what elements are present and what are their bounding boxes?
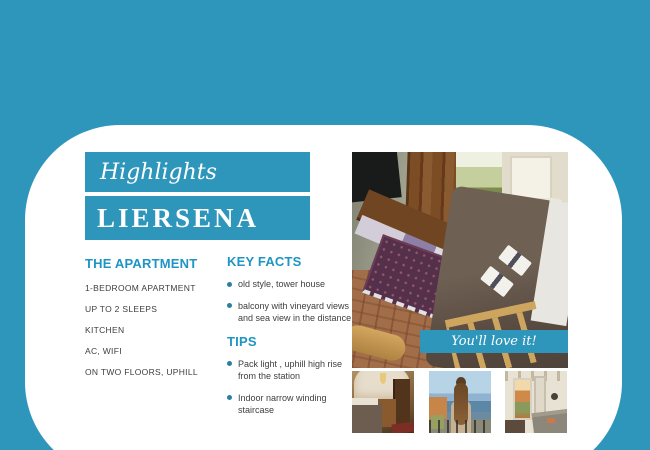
key-facts-heading: KEY FACTS	[227, 254, 353, 269]
flyer-card: Highlights LIERSENA THE APARTMENT 1-BEDR…	[25, 125, 622, 450]
tip-item: Indoor narrow winding staircase	[227, 392, 353, 417]
bullet-dot-icon	[227, 361, 232, 366]
photo-lamp	[380, 373, 386, 384]
photo-rug	[391, 422, 414, 433]
highlights-label: Highlights	[100, 160, 217, 185]
photo-bed-item	[547, 418, 555, 423]
tip-text: Indoor narrow winding staircase	[238, 392, 353, 417]
apartment-item: ON TWO FLOORS, UPHILL	[85, 368, 205, 377]
flyer-background: Highlights LIERSENA THE APARTMENT 1-BEDR…	[0, 0, 650, 450]
property-name: LIERSENA	[97, 203, 259, 234]
key-facts-section: KEY FACTS old style, tower house balcony…	[227, 254, 353, 426]
caption-banner: You'll love it!	[420, 330, 568, 353]
tip-text: Pack light , uphill high rise from the s…	[238, 358, 353, 383]
apartment-item: 1-BEDROOM APARTMENT	[85, 284, 205, 293]
caption-text: You'll love it!	[451, 334, 536, 349]
apartment-item: UP TO 2 SLEEPS	[85, 305, 205, 314]
apartment-item: AC, WIFI	[85, 347, 205, 356]
photo-pillow	[352, 398, 378, 405]
bullet-dot-icon	[227, 282, 232, 287]
key-fact-text: balcony with vineyard views and sea view…	[238, 300, 353, 325]
photo-balcony-railing	[429, 420, 491, 433]
key-fact-item: balcony with vineyard views and sea view…	[227, 300, 353, 325]
thumbnail-bedroom	[352, 371, 414, 433]
apartment-section: THE APARTMENT 1-BEDROOM APARTMENT UP TO …	[85, 256, 205, 389]
photo-doorway-view	[513, 378, 532, 420]
apartment-item: KITCHEN	[85, 326, 205, 335]
photo-long-hair	[454, 383, 468, 425]
key-fact-item: old style, tower house	[227, 278, 353, 291]
thumbnail-balcony-sea-view	[429, 371, 491, 433]
photo-wall-ornament	[551, 393, 558, 400]
bullet-dot-icon	[227, 303, 232, 308]
thumbnail-bright-room	[505, 371, 567, 433]
key-fact-text: old style, tower house	[238, 278, 325, 291]
title-banner: LIERSENA	[85, 196, 310, 240]
photo-floor	[505, 420, 525, 433]
tip-item: Pack light , uphill high rise from the s…	[227, 358, 353, 383]
tips-heading: TIPS	[227, 334, 353, 349]
bullet-dot-icon	[227, 395, 232, 400]
highlights-banner: Highlights	[85, 152, 310, 192]
photo-bed	[352, 403, 382, 433]
apartment-heading: THE APARTMENT	[85, 256, 205, 271]
